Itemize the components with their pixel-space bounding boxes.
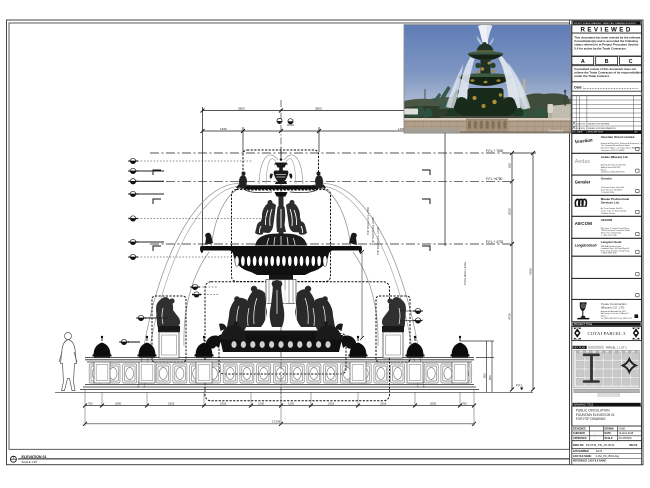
svg-text:PROJECT TITLE: PROJECT TITLE [574,323,593,326]
svg-text:17234: 17234 [272,420,281,424]
svg-text:2050: 2050 [508,208,512,215]
svg-text:Telephone: (853) 2833 1870: Telephone: (853) 2833 1870 [601,172,625,174]
svg-text:2318: 2318 [220,401,227,405]
svg-text:REV B: REV B [630,443,638,447]
svg-text:CHAD: CHAD [619,427,626,430]
svg-text:820: 820 [508,163,512,168]
svg-text:COTAI PARCEL 3: COTAI PARCEL 3 [588,331,627,336]
svg-text:A: A [581,59,585,65]
svg-text:1495: 1495 [220,127,227,131]
svg-text:SCALE: SCALE [605,437,614,440]
svg-text:Venetian Orient Limited: Venetian Orient Limited [601,135,635,139]
svg-text:C: C [629,59,633,65]
svg-text:TOP TIER BOWL +6780: TOP TIER BOWL +6780 [371,216,375,245]
svg-text:15/07/16: 15/07/16 [577,124,586,126]
svg-text:ISSUED FOR INFORMATION: ISSUED FOR INFORMATION [588,127,616,130]
svg-text:B: B [605,59,609,65]
svg-text:ISSUED FOR REVIEW: ISSUED FOR REVIEW [588,124,610,126]
svg-text:KEY PLAN: KEY PLAN [573,346,585,349]
svg-text:T 415.433.3700: T 415.433.3700 [601,192,614,194]
svg-text:Gensler: Gensler [601,177,613,181]
svg-text:1200: 1200 [258,401,265,405]
svg-text:under the Trade Contract.: under the Trade Contract. [574,74,609,78]
svg-text:AECOM: AECOM [575,221,592,226]
svg-text:3800: 3800 [238,107,245,111]
svg-text:2318: 2318 [380,401,387,405]
svg-text:DWG NO: DWG NO [573,444,584,447]
svg-text:DATE: DATE [605,432,612,435]
svg-text:5.4 for action by the Trade Co: 5.4 for action by the Trade Contractor. [574,46,626,50]
svg-text:Aedas (Macau) Ltd.: Aedas (Macau) Ltd. [601,155,629,159]
svg-text:CHECKED: CHECKED [573,432,585,435]
svg-text:REVIEWED: REVIEWED [580,26,632,33]
svg-text:2050: 2050 [115,401,122,405]
svg-text:Aedas: Aedas [575,159,591,165]
svg-text:750: 750 [462,401,467,405]
svg-text:CAD FILE NAME:: CAD FILE NAME: [573,455,592,458]
svg-text:Langdon Seah: Langdon Seah [601,240,622,244]
svg-text:Gensler: Gensler [575,179,591,184]
svg-text:F.F.L: F.F.L [516,384,523,388]
svg-text:1200: 1200 [288,401,295,405]
svg-text:DO NOT SCALE DRAWING. VERIFY A: DO NOT SCALE DRAWING. VERIFY ALL DIMENSI… [574,22,637,25]
svg-text:AS SHOWN: AS SHOWN [619,437,632,440]
svg-text:Date :: Date : [574,85,583,89]
svg-text:T: +852 2317 7000: T: +852 2317 7000 [601,235,617,237]
svg-text:DRAWN: DRAWN [605,427,614,430]
svg-text:POOL WALL LEVEL: POOL WALL LEVEL [463,261,467,285]
svg-text:750: 750 [88,401,93,405]
svg-text:31123: 31123 [596,451,603,453]
svg-text:850: 850 [483,373,487,378]
svg-text:SCALE 1:25: SCALE 1:25 [22,460,38,464]
svg-text:JOB NUMBER:: JOB NUMBER: [573,451,589,453]
svg-text:TOP FINIAL F.F.L +7600: TOP FINIAL F.F.L +7600 [366,206,370,235]
svg-text:P3-PLB_PD_25-0011: P3-PLB_PD_25-0011 [586,443,615,447]
svg-text:25 Andar, Macau: 25 Andar, Macau [601,212,615,215]
svg-text:ELEVATION 01: ELEVATION 01 [22,455,47,459]
svg-text:3800: 3800 [315,107,322,111]
svg-text:F.F.L + 4730: F.F.L + 4730 [486,240,504,244]
svg-text:DESIGNED: DESIGNED [573,427,586,430]
svg-text:T: (852) 2830 3500: T: (852) 2830 3500 [601,253,617,255]
svg-text:900: 900 [488,375,492,380]
svg-text:7600: 7600 [529,268,533,275]
svg-text:(Macau) CO. LTD.: (Macau) CO. LTD. [601,306,625,310]
svg-text:REFERENCE CAD FILE NAME:: REFERENCE CAD FILE NAME: [573,460,607,463]
svg-text:© panoramio: © panoramio [548,129,563,133]
svg-text:F.F.L + 7600: F.F.L + 7600 [486,149,504,153]
svg-text:12-AUG-2016: 12-AUG-2016 [619,432,634,435]
svg-text:0-15A_PD_25001.dwg: 0-15A_PD_25001.dwg [596,455,620,458]
svg-text:Services Ltd.: Services Ltd. [601,201,620,205]
svg-text:APPROVED: APPROVED [573,437,587,440]
svg-text:Tel: (853) 2870 0171 Fax: 287: Tel: (853) 2870 0171 Fax: 2870 0172 [601,318,632,320]
svg-text:TOP BASIN F.F.L +4730: TOP BASIN F.F.L +4730 [376,227,380,255]
svg-text:2318: 2318 [328,401,335,405]
svg-text:Telephone: (853) 81 118888: Telephone: (853) 81 118888 [601,150,625,152]
svg-text:AECOM: AECOM [601,218,613,222]
svg-text:2318: 2318 [168,401,175,405]
svg-text:01/08/16: 01/08/16 [577,128,586,130]
svg-text:F.F.L +6780: F.F.L +6780 [486,177,503,181]
svg-text:FOR FSF DRAWING: FOR FSF DRAWING [576,417,606,421]
svg-text:PARCEL 1, LOT 2: PARCEL 1, LOT 2 [606,346,627,350]
svg-text:LangdonSeah: LangdonSeah [575,243,597,247]
svg-text:4730: 4730 [508,313,512,320]
svg-text:2050: 2050 [430,401,437,405]
